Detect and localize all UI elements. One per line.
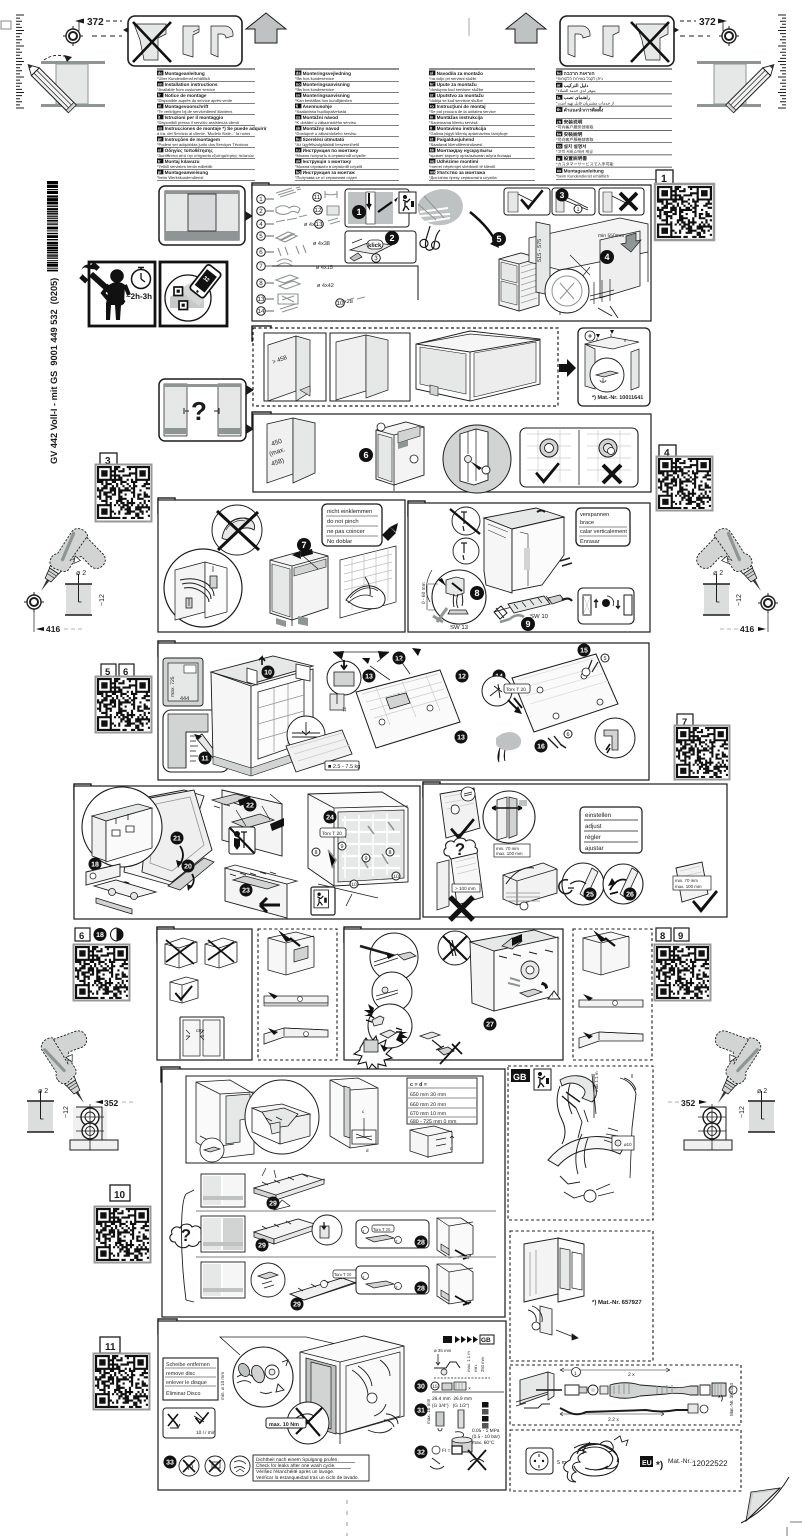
svg-text:max. 725: max. 725: [170, 676, 176, 697]
svg-text:Torx T 20: Torx T 20: [334, 1272, 352, 1277]
svg-text:ø 2: ø 2: [713, 570, 723, 577]
svg-text:*Можна отримати в сервісній сл: *Можна отримати в сервісній службі: [295, 164, 362, 169]
svg-text:15: 15: [580, 648, 588, 655]
svg-text:*) Mat.-Nr. 657927: *) Mat.-Nr. 657927: [592, 1299, 642, 1306]
svg-text:12: 12: [458, 674, 466, 681]
svg-text:14: 14: [258, 308, 265, 315]
svg-text:*Über Kundendienst erhältlich: *Über Kundendienst erhältlich: [157, 76, 210, 81]
svg-text:30: 30: [417, 1384, 425, 1391]
svg-text:2: 2: [389, 233, 394, 243]
svg-text:Mat.-Nr.:: Mat.-Nr.:: [668, 1458, 693, 1465]
svg-text:8: 8: [259, 280, 263, 287]
svg-text:max. 100 mm: max. 100 mm: [496, 851, 523, 856]
svg-text:*Te verkrijgen bij de serviced: *Te verkrijgen bij de servicedienst klan…: [157, 109, 232, 114]
svg-text:28: 28: [417, 1286, 425, 1293]
svg-text:6: 6: [79, 931, 84, 942]
svg-text:2 x: 2 x: [628, 1372, 635, 1378]
svg-text:8: 8: [474, 588, 479, 598]
svg-text:設置説明書: 設置説明書: [564, 155, 588, 161]
svg-text:Torx T 20: Torx T 20: [373, 1227, 391, 1232]
svg-text:ø 4x42: ø 4x42: [317, 283, 334, 289]
svg-text:8: 8: [660, 931, 665, 942]
svg-text:29: 29: [293, 1302, 301, 1309]
svg-text:he: he: [557, 71, 562, 76]
svg-text:29: 29: [258, 1243, 266, 1250]
svg-text:5: 5: [496, 234, 501, 244]
svg-text:9: 9: [678, 931, 683, 942]
svg-text:cm: cm: [196, 1028, 203, 1034]
svg-text:6: 6: [363, 450, 368, 460]
svg-text:min. ø 10 mm: min. ø 10 mm: [220, 1372, 225, 1400]
svg-text:安裝說明: 安裝說明: [564, 131, 583, 137]
svg-text:*Disponibili presso il servizi: *Disponibili presso il servizio assisten…: [157, 120, 239, 125]
svg-text:einstellen: einstellen: [585, 812, 612, 819]
svg-text:Eliminar Disco: Eliminar Disco: [166, 1391, 200, 1397]
svg-text:10: 10: [393, 874, 399, 880]
svg-text:ø 2: ø 2: [757, 1088, 767, 1095]
svg-text:29: 29: [269, 1201, 277, 1208]
svg-text:*K dostání u zákaznického serv: *K dostání u zákaznického servisu: [295, 120, 356, 125]
svg-text:5: 5: [603, 656, 606, 662]
svg-text:*از خدمات مشتریان قابل تهیه اس: *از خدمات مشتریان قابل تهیه است: [556, 100, 614, 105]
svg-text:27: 27: [486, 1022, 494, 1029]
svg-text:bg: bg: [296, 170, 301, 175]
svg-text:GB: GB: [513, 1072, 527, 1082]
svg-text:25: 25: [586, 892, 594, 899]
svg-text:15: 15: [432, 1384, 438, 1390]
svg-text:sv: sv: [296, 93, 301, 98]
svg-text:32: 32: [417, 1450, 425, 1457]
svg-text:*Получава се от сервизния отде: *Получава се от сервизния отдел: [295, 175, 358, 180]
svg-text:9: 9: [340, 844, 343, 850]
svg-text:0.05 - 1 MPa: 0.05 - 1 MPa: [472, 1428, 500, 1434]
svg-text:*beim Werkskundendienst: *beim Werkskundendienst: [157, 175, 204, 180]
svg-text:ar: ar: [557, 83, 561, 88]
svg-text:Check for leaks after one wash: Check for leaks after one wash cycle.: [256, 1463, 335, 1469]
svg-text:3: 3: [374, 255, 378, 262]
svg-text:sr: sr: [430, 93, 434, 98]
svg-text:416: 416: [740, 624, 754, 634]
svg-text:Dichtheit nach einem Spülgang: Dichtheit nach einem Spülgang prüfen.: [256, 1457, 339, 1463]
svg-text:sq: sq: [430, 159, 435, 164]
svg-text:*Kan beställas hos kundtjänste: *Kan beställas hos kundtjänsten: [295, 98, 352, 103]
svg-text:ø 4x38: ø 4x38: [313, 241, 330, 247]
svg-text:*ניתן לקבל בשירות הלקוחות: *ניתן לקבל בשירות הלקוחות: [556, 76, 603, 81]
svg-text:*Available from customer servi: *Available from customer service: [157, 87, 216, 92]
svg-text:EU: EU: [642, 1460, 652, 1467]
svg-text:FI =: FI =: [442, 1448, 451, 1454]
svg-text:10: 10: [337, 300, 344, 307]
svg-text:12: 12: [315, 207, 322, 214]
svg-text:28: 28: [417, 1240, 425, 1247]
svg-text:18: 18: [91, 862, 99, 869]
svg-text:11: 11: [314, 194, 321, 201]
svg-text:da: da: [296, 71, 301, 76]
svg-text:444: 444: [180, 696, 189, 702]
svg-text:3: 3: [560, 190, 565, 200]
svg-text:max. 1.1 m: max. 1.1 m: [466, 1351, 471, 1372]
svg-text:8: 8: [314, 850, 317, 856]
svg-text:*Saadaval klienditeenindusest: *Saadaval klienditeenindusest: [429, 142, 483, 147]
svg-text:enlever le disque: enlever le disque: [166, 1380, 207, 1386]
svg-text:1: 1: [576, 207, 579, 213]
svg-text:sl: sl: [430, 71, 433, 76]
svg-text:*Saatavissa huoltopalvelusta: *Saatavissa huoltopalvelusta: [295, 109, 347, 114]
svg-text:×: ×: [468, 1386, 471, 1392]
svg-text:4: 4: [604, 252, 609, 262]
svg-text:416: 416: [46, 624, 60, 634]
svg-text:(G 3/4") (G 1/2"): (G 3/4") (G 1/2"): [432, 1403, 470, 1409]
svg-text:~12: ~12: [99, 594, 106, 606]
svg-text:xx: xx: [557, 168, 562, 173]
svg-text:uk: uk: [296, 159, 301, 164]
svg-text:13: 13: [457, 735, 465, 742]
svg-text:a tra. del Servicio al cliente: a tra. del Servicio al cliente. 'Modelo …: [157, 131, 250, 136]
svg-text:33: 33: [166, 1460, 174, 1467]
svg-text:13: 13: [316, 221, 323, 228]
svg-text:d: d: [450, 1146, 453, 1152]
svg-text:4: 4: [259, 221, 263, 228]
svg-text:660 mm 20 mm: 660 mm 20 mm: [410, 1102, 446, 1108]
svg-text:11: 11: [201, 756, 209, 763]
svg-text:kk: kk: [430, 148, 435, 153]
svg-text:verspannen: verspannen: [580, 512, 609, 518]
svg-text:~12: ~12: [739, 1106, 746, 1118]
svg-text:ø 2: ø 2: [38, 1088, 48, 1095]
svg-text:2: 2: [259, 208, 263, 215]
svg-text:*): *): [718, 1394, 723, 1402]
svg-text:min.: min.: [473, 1364, 478, 1372]
svg-text:21: 21: [173, 836, 181, 843]
svg-text:ø 35 mm: ø 35 mm: [434, 1348, 452, 1353]
svg-text:*Yetkili servisten temin edile: *Yetkili servisten temin edilebilir: [157, 164, 213, 169]
svg-text:cs: cs: [296, 115, 301, 120]
svg-text:5: 5: [259, 233, 263, 240]
svg-text:10: 10: [351, 882, 357, 888]
svg-text:*merret nëpërmjet shërbimit të: *merret nëpërmjet shërbimit të klientit: [429, 164, 496, 169]
svg-text:■ 2.5 - 7.5 kg: ■ 2.5 - 7.5 kg: [328, 764, 360, 770]
svg-text:*Saņemama klientu servisā: *Saņemama klientu servisā: [429, 120, 478, 125]
svg-text:13: 13: [365, 674, 373, 681]
svg-text:*Достапно преку сервисната слу: *Достапно преку сервисната служба: [429, 175, 497, 180]
svg-text:no: no: [296, 82, 301, 87]
svg-text:16: 16: [537, 744, 545, 751]
svg-text:c = d =: c = d =: [410, 1082, 427, 1088]
svg-text:GB: GB: [481, 1337, 491, 1344]
svg-text:No doblar: No doblar: [327, 538, 352, 545]
svg-text:pl: pl: [158, 170, 162, 175]
svg-text:max. 60°C: max. 60°C: [472, 1440, 495, 1446]
svg-text:680 - 725 mm 0 mm: 680 - 725 mm 0 mm: [410, 1119, 456, 1125]
svg-text:*na voljo pri servisni službi: *na voljo pri servisni službi: [429, 76, 476, 81]
svg-text:372: 372: [87, 17, 104, 28]
svg-text:max 1.1 m: max 1.1 m: [594, 1071, 599, 1092]
svg-text:*fås hos kundeservice: *fås hos kundeservice: [295, 76, 335, 81]
svg-text:es: es: [158, 126, 163, 131]
svg-text:*Disponible auprès du service: *Disponible auprès du service après-vent…: [157, 98, 233, 103]
svg-text:Enrasar: Enrasar: [580, 539, 600, 545]
svg-text:ajustar: ajustar: [585, 845, 604, 852]
svg-text:*고객 서비스에서 제공: *고객 서비스에서 제공: [556, 149, 593, 154]
svg-text:hu: hu: [296, 137, 301, 142]
svg-text:~12: ~12: [63, 1106, 70, 1118]
svg-text:~12: ~12: [736, 594, 743, 606]
svg-text:GV 442 Voll-I - mit GS 9001 4: GV 442 Voll-I - mit GS 9001 449 532 (020…: [49, 278, 59, 464]
svg-text:*Dostupné u zákazníckeho servi: *Dostupné u zákazníckeho servisu: [295, 131, 356, 136]
svg-text:de: de: [158, 71, 163, 76]
svg-text:22: 22: [246, 803, 254, 810]
svg-text:250 mm: 250 mm: [480, 1356, 485, 1372]
svg-text:*): *): [656, 1460, 663, 1471]
svg-text:*可向客户服务部索取: *可向客户服务部索取: [556, 125, 594, 130]
svg-text:352: 352: [681, 1098, 695, 1108]
svg-text:en: en: [158, 82, 163, 87]
svg-text:Torx T 20: Torx T 20: [506, 687, 526, 693]
svg-text:1: 1: [356, 207, 361, 217]
svg-text:max. 10 mm: max. 10 mm: [426, 1399, 431, 1424]
svg-text:คำแนะนำการติดตั้ง: คำแนะนำการติดตั้ง: [564, 105, 604, 112]
svg-text:670 mm 10 mm: 670 mm 10 mm: [410, 1111, 446, 1117]
svg-text:max. 10 Nm: max. 10 Nm: [269, 1422, 299, 1428]
svg-text:*Az ügyfélszolgálatnál beszere: *Az ügyfélszolgálatnál beszerezhető: [295, 142, 360, 147]
svg-text:515 - 575: 515 - 575: [537, 239, 543, 262]
svg-text:brace: brace: [580, 519, 594, 526]
svg-text:> 100 mm: > 100 mm: [455, 886, 476, 891]
svg-text:8: 8: [388, 850, 391, 856]
svg-text:*Galima įsigyti klientų aptarn: *Galima įsigyti klientų aptarnavimo tarn…: [429, 131, 508, 136]
svg-text:pt: pt: [158, 137, 162, 142]
svg-text:23: 23: [242, 888, 250, 895]
svg-text:max. 100 mm: max. 100 mm: [675, 884, 702, 889]
svg-text:352: 352: [104, 1098, 118, 1108]
svg-text:18: 18: [96, 932, 104, 939]
svg-text:*カスタマーサービスで入手可能: *カスタマーサービスで入手可能: [556, 161, 613, 166]
svg-text:1: 1: [574, 1371, 577, 1377]
svg-text:klick: klick: [368, 242, 382, 249]
svg-text:ja: ja: [556, 156, 561, 161]
svg-text:12: 12: [342, 706, 347, 712]
svg-text:10: 10: [114, 1190, 126, 1201]
svg-text:*Podem ser adquiridas junto do: *Podem ser adquiridas junto dos Serviços…: [157, 142, 248, 147]
svg-text:nicht einklemmen: nicht einklemmen: [327, 508, 372, 515]
svg-text:安装说明: 安装说明: [564, 119, 583, 125]
svg-text:6: 6: [259, 249, 263, 256]
svg-text:1: 1: [259, 196, 263, 203]
svg-text:Torx T 20: Torx T 20: [322, 831, 342, 837]
svg-text:ro: ro: [430, 104, 435, 109]
svg-text:20: 20: [184, 864, 192, 871]
svg-text:13: 13: [258, 296, 265, 303]
svg-text:*可向客戶服務部索取: *可向客戶服務部索取: [556, 137, 594, 142]
svg-text:24: 24: [326, 815, 334, 822]
svg-text:fi: fi: [296, 104, 298, 109]
svg-text:12022522: 12022522: [692, 1459, 728, 1468]
svg-text:fr: fr: [158, 93, 161, 98]
svg-text:el: el: [158, 148, 161, 153]
svg-text:régler: régler: [585, 834, 601, 841]
svg-text:31: 31: [417, 1408, 425, 1415]
svg-text:*Можно получить в сервисной сл: *Можно получить в сервисной службе: [295, 153, 366, 158]
svg-text:*beim Kundendienst erhältlich: *beim Kundendienst erhältlich: [556, 174, 609, 179]
svg-text:372: 372: [699, 17, 716, 28]
svg-text:mk: mk: [430, 170, 437, 175]
svg-text:7: 7: [301, 540, 306, 550]
svg-text:min 550mm: min 550mm: [598, 233, 624, 239]
svg-text:*fås hos kundeservice: *fås hos kundeservice: [295, 87, 335, 92]
svg-text:SW 13: SW 13: [450, 624, 469, 631]
svg-text:*dobija se kod servisne službe: *dobija se kod servisne službe: [429, 98, 484, 103]
svg-text:zh: zh: [557, 119, 562, 124]
svg-text:~2h-3h: ~2h-3h: [126, 292, 152, 301]
svg-text:11: 11: [105, 1342, 116, 1353]
svg-text:*Se pot procura de la unitatea: *Se pot procura de la unitatea service: [429, 109, 496, 114]
svg-text:26.4 mm 26.9 mm: 26.4 mm 26.9 mm: [432, 1396, 472, 1402]
svg-text:nl: nl: [158, 104, 162, 109]
svg-text:do not pinch: do not pinch: [327, 518, 359, 525]
svg-text:Verificar la estanqueidad tras: Verificar la estanqueidad tras un ciclo …: [256, 1475, 359, 1481]
svg-text:*Διατίθενται από την υπηρεσία: *Διατίθενται από την υπηρεσία εξυπηρέτησ…: [157, 153, 254, 158]
svg-text:?: ?: [191, 396, 207, 426]
svg-text:ne pas coincer: ne pas coincer: [327, 528, 365, 535]
svg-text:9: 9: [364, 856, 367, 862]
svg-text:sk: sk: [296, 126, 301, 131]
svg-text:6: 6: [566, 732, 569, 738]
svg-text:*қызмет көрсету орталығынан ал: *қызмет көрсету орталығынан алуға болады: [429, 153, 511, 158]
svg-text:ø10: ø10: [624, 1142, 632, 1147]
svg-text:*) Mat.-Nr. 10011641: *) Mat.-Nr. 10011641: [592, 395, 643, 401]
svg-text:*يتوفر لدى خدمة العملاء: *يتوفر لدى خدمة العملاء: [556, 88, 596, 93]
svg-text:Scheibe entfernen: Scheibe entfernen: [166, 1362, 210, 1368]
svg-text:adjust: adjust: [585, 823, 602, 830]
svg-text:7: 7: [259, 263, 263, 270]
svg-text:Mat.-Nr. 350354: Mat.-Nr. 350354: [729, 1383, 734, 1416]
svg-text:650 mm 30 mm: 650 mm 30 mm: [410, 1092, 446, 1098]
svg-text:remove disc: remove disc: [166, 1371, 195, 1377]
svg-text:9: 9: [525, 619, 530, 629]
svg-text:0 - 60 mm: 0 - 60 mm: [421, 582, 427, 604]
svg-text:min. 70 mm: min. 70 mm: [675, 878, 698, 883]
svg-text:ø 2: ø 2: [76, 570, 86, 577]
svg-text:tr: tr: [158, 159, 161, 164]
svg-text:2.2 x: 2.2 x: [608, 1417, 619, 1423]
svg-text:ko: ko: [557, 144, 562, 149]
svg-text:26: 26: [626, 892, 634, 899]
svg-text:hr: hr: [430, 82, 434, 87]
svg-text:*dostupno kod servisne službe: *dostupno kod servisne službe: [429, 87, 484, 92]
svg-text:th: th: [557, 107, 561, 112]
svg-text:10: 10: [264, 670, 272, 677]
svg-text:Vérifiez l'étanchéité après un: Vérifiez l'étanchéité après un lavage.: [256, 1469, 334, 1475]
svg-text:(0.5 - 10 bar): (0.5 - 10 bar): [472, 1434, 500, 1440]
svg-text:calar verticalement: calar verticalement: [580, 528, 627, 535]
svg-text:10 l / min: 10 l / min: [196, 1430, 216, 1436]
svg-text:ru: ru: [296, 148, 301, 153]
